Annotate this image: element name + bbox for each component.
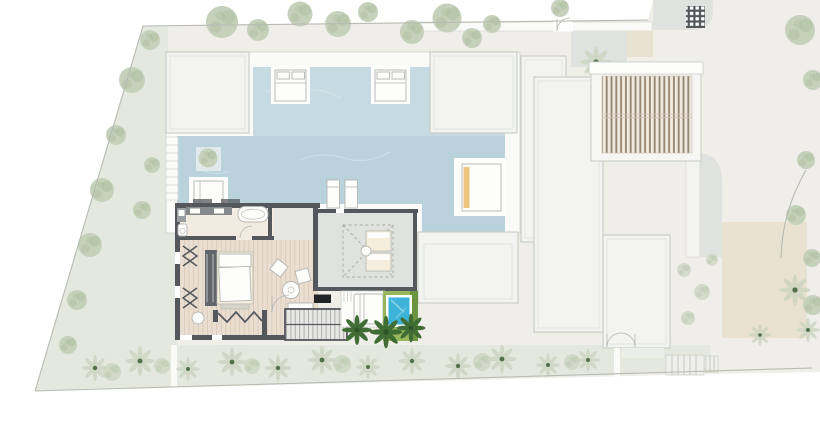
entry-court-tan-pad [627,31,653,57]
pergola-slats [602,76,692,153]
utility-floor [274,205,318,240]
bbq-grill [314,295,331,304]
pool-daybed-north-1 [271,66,310,104]
bed-bench [221,304,249,309]
east-curved-paving [700,153,722,257]
bed [217,252,253,309]
roof-southeast [603,235,670,348]
pool-steps [166,137,178,200]
east-wall-band [686,152,700,257]
pouf [192,312,204,324]
pergola-beam [589,62,703,74]
round-table [283,282,300,299]
pool-daybed-east [454,158,506,216]
bathtub [238,207,268,223]
palm-tree-icon-1 [342,315,372,345]
toilet [178,224,187,236]
garden-path-gap [171,345,177,389]
sink-1 [190,209,200,214]
palm-tree-icon-3 [397,314,426,343]
entry-step-pad [622,348,664,358]
roof-south-deck [418,232,518,303]
skylight-side-table [361,246,371,256]
drain-grate-icon [686,6,705,28]
site-plan-drawing [0,0,820,445]
pergola [589,62,703,161]
roof-center [430,52,517,133]
roof-northwest [166,52,249,133]
pool-daybed-north-2 [371,66,410,104]
sink-2 [214,209,224,214]
towel-accent [464,167,470,208]
pool-planter-tree-icon [199,149,218,168]
palm-tree-icon-2 [370,316,402,348]
garden-gate-swing [553,18,573,32]
site-plan-canvas: Villa site plan — pools, suite floor pla… [0,0,820,445]
